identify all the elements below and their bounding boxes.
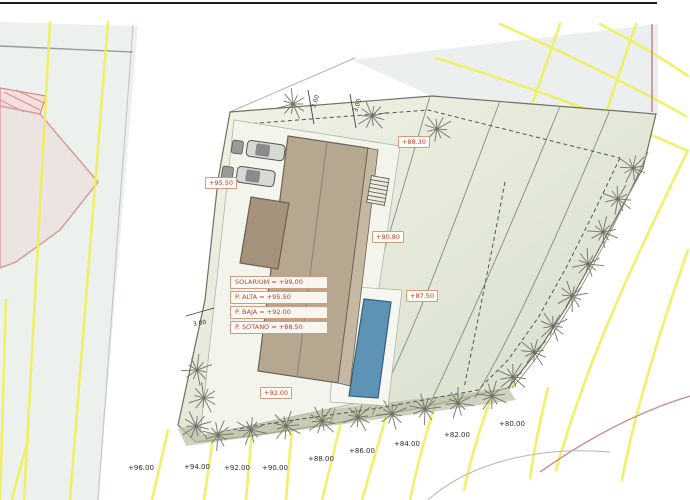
site-plan-canvas: SOLARIUM = +99.00P. ALTA = +95.50P. BAJA…: [0, 0, 690, 500]
floor-level-row: P. ALTA = +95.50: [230, 291, 328, 304]
floor-level-row: P. SOTANO = +88.50: [230, 321, 328, 334]
floor-level-row: P. BAJA = +92.00: [230, 306, 328, 319]
site-plan-drawing: [0, 0, 690, 500]
floor-level-row: SOLARIUM = +99.00: [230, 276, 328, 289]
floor-levels-table: SOLARIUM = +99.00P. ALTA = +95.50P. BAJA…: [230, 276, 328, 334]
